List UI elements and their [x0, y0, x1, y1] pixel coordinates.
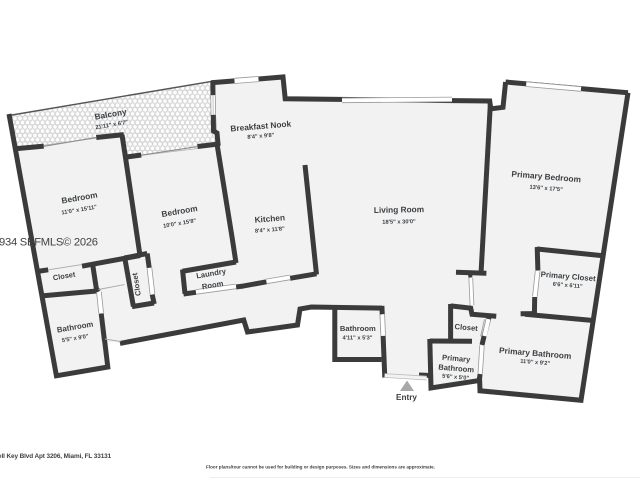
svg-text:Entry: Entry	[396, 393, 417, 402]
svg-text:4'11" x 5'3": 4'11" x 5'3"	[343, 335, 373, 341]
svg-text:934 SEFMLS© 2026: 934 SEFMLS© 2026	[0, 237, 98, 249]
svg-text:Bathroom: Bathroom	[340, 324, 376, 333]
svg-text:Floor plans/tour cannot be use: Floor plans/tour cannot be used for buil…	[206, 465, 435, 470]
svg-text:ell Key Blvd Apt 3206, Miami,: ell Key Blvd Apt 3206, Miami, FL 33131	[0, 453, 112, 460]
svg-text:Living Room: Living Room	[374, 204, 424, 215]
svg-text:18'5" x 30'0": 18'5" x 30'0"	[382, 219, 416, 226]
